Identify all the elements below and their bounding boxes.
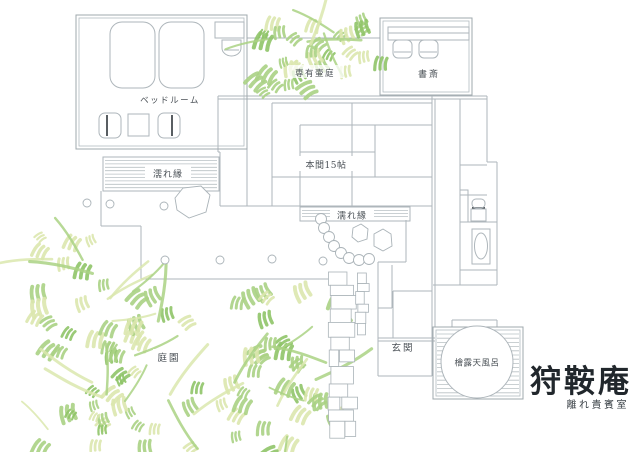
label-open-air-bath: 檜露天風呂: [454, 358, 499, 369]
label-bedroom: ベッドルーム: [140, 96, 200, 106]
garden-rock-large: [175, 186, 210, 218]
bed-right: [159, 22, 204, 88]
bedroom-cabinet: [215, 22, 244, 38]
garden-rock-small: [352, 224, 368, 242]
floorplan-drawing: ベッドルーム 専有壷庭 書斎 本間15帖 濡れ縁 濡れ縁 庭園 玄関 檜露天風呂…: [0, 0, 640, 452]
terrace-chair-right: [158, 113, 180, 138]
label-study: 書斎: [418, 68, 440, 80]
label-veranda-right: 濡れ縁: [337, 210, 367, 222]
terrace-table: [128, 114, 149, 136]
study-chair-left: [393, 40, 412, 58]
label-veranda-left: 濡れ縁: [153, 168, 183, 180]
label-garden: 庭園: [157, 352, 180, 364]
terrace-chair-left: [99, 113, 121, 138]
toilet-lid: [472, 199, 485, 208]
title-block: 狩鞍庵 離れ貴賓室: [530, 364, 632, 411]
toilet-tank: [471, 209, 486, 221]
label-tsubo-garden: 専有壷庭: [295, 68, 335, 79]
label-entrance: 玄関: [391, 342, 414, 354]
title: 狩鞍庵: [530, 364, 632, 400]
subtitle: 離れ貴賓室: [567, 398, 630, 411]
floorplan: ベッドルーム 専有壷庭 書斎 本間15帖 濡れ縁 濡れ縁 庭園 玄関 檜露天風呂…: [0, 0, 640, 452]
study-chair-right: [419, 40, 438, 58]
garden-rock-mid: [374, 229, 392, 251]
vanity-sink: [475, 233, 488, 259]
bed-left: [110, 22, 155, 88]
label-main-room: 本間15帖: [306, 159, 347, 171]
